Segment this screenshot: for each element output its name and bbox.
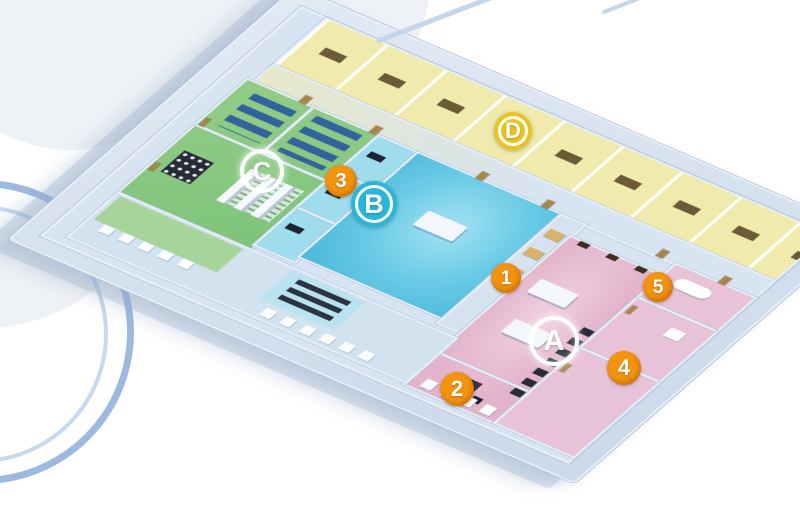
roof-beam	[602, 0, 669, 14]
floorplan-illustration: ABCD12345	[0, 0, 800, 522]
